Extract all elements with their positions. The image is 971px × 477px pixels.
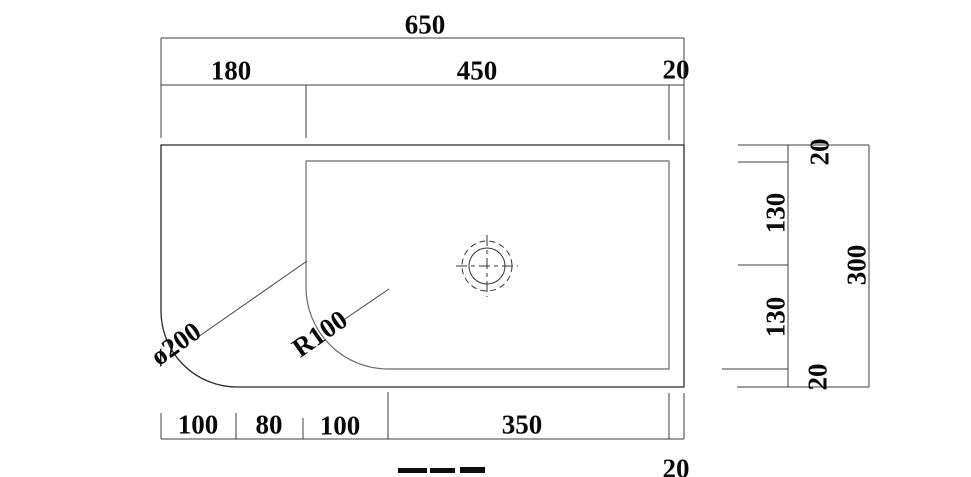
technical-drawing-canvas: 650 180 450 20 100 80 100 350 20 20 130 … [0,0,971,477]
cropped-caption-glyph [460,467,485,473]
basin-outline [161,145,684,387]
dim-bottom-seg4-label: 350 [502,412,543,439]
leader-lines [198,261,389,337]
outer-rim-outline [161,145,684,387]
dim-top-seg3-label: 20 [663,57,690,84]
dim-bottom-rim-label: 20 [663,456,690,477]
dim-side-seg3-label: 130 [763,297,790,338]
cropped-caption-glyph [398,468,427,473]
dim-side-seg4-label: 20 [805,364,832,391]
dim-overall-width-label: 650 [405,12,446,39]
drain-hole [456,235,518,297]
top-dimension-lines [161,38,684,145]
dim-bottom-seg2-label: 80 [256,412,283,439]
cropped-caption-glyph [430,468,455,473]
leader-inner-corner [345,289,389,319]
dim-side-overall-label: 300 [844,245,871,286]
dim-top-seg1-label: 180 [211,58,252,85]
leader-outer-corner [198,261,307,337]
bottom-dimension-lines [161,392,684,439]
dim-side-seg1-label: 20 [807,139,834,166]
dim-top-seg2-label: 450 [457,58,498,85]
dim-bottom-seg3-label: 100 [320,413,361,440]
dim-side-seg2-label: 130 [763,193,790,234]
dim-bottom-seg1-label: 100 [178,412,219,439]
